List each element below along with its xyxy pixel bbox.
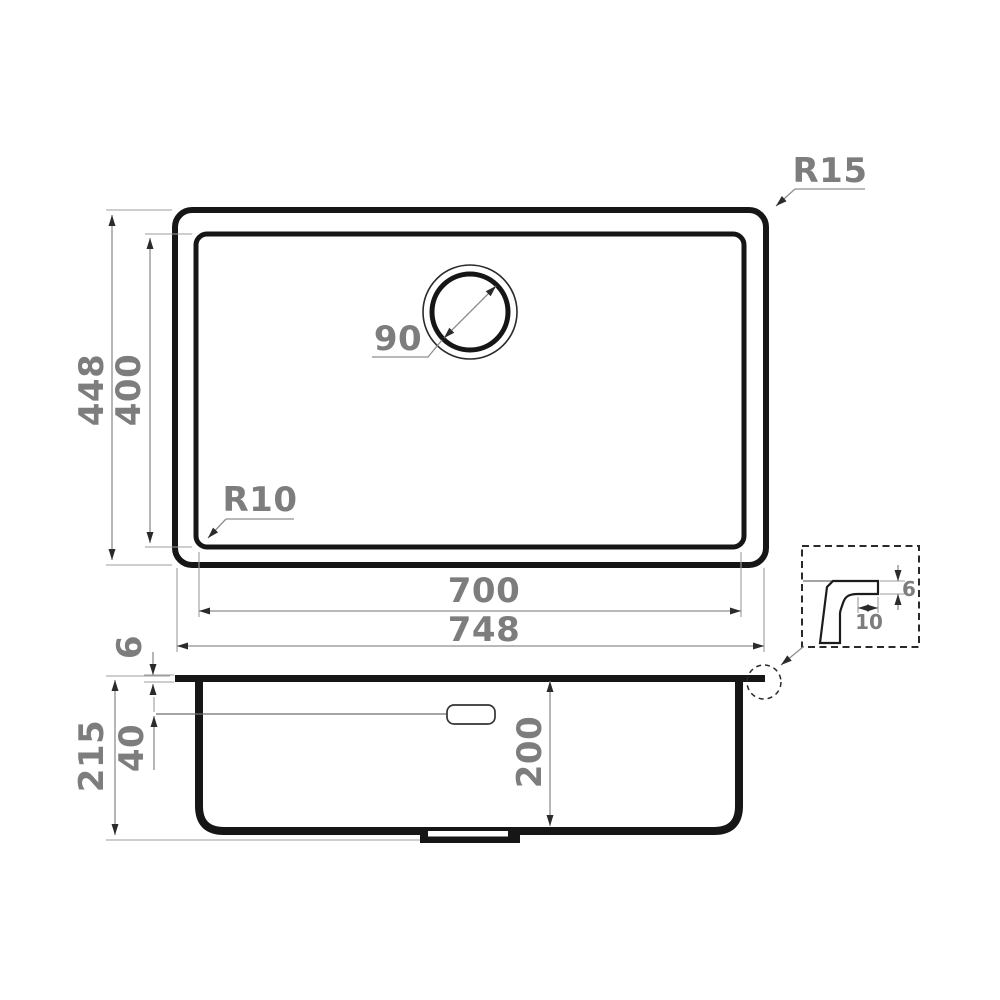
dim-inner-width-label: 700 <box>448 571 520 611</box>
drain-diameter-arrow <box>470 286 496 312</box>
dim-inner-height-label: 400 <box>109 354 149 426</box>
overflow-hole <box>447 705 495 724</box>
detail-leader <box>781 647 803 665</box>
dim-lip-width-label: 10 <box>855 610 883 634</box>
drawing-canvas: 90 448 400 700 748 R15 R10 <box>0 0 1000 1000</box>
drain-diameter-arrow <box>444 312 470 338</box>
drain-diameter-label: 90 <box>374 319 422 359</box>
dim-outer-height-label: 448 <box>72 354 112 426</box>
outer-radius-label: R15 <box>793 151 868 191</box>
outer-radius-leader <box>776 189 795 206</box>
dim-bowl-depth-label: 200 <box>510 716 550 788</box>
drain-fitting-slot <box>428 831 508 837</box>
sink-technical-drawing: 90 448 400 700 748 R15 R10 <box>0 0 1000 1000</box>
side-view: 215 6 40 200 <box>72 635 781 843</box>
dim-overflow-offset-label: 40 <box>112 724 152 772</box>
inner-radius-leader <box>208 519 226 538</box>
dim-rim-height-label: 6 <box>110 635 150 659</box>
rim-flange <box>175 675 765 682</box>
top-view: 90 448 400 700 748 R15 R10 <box>72 151 868 652</box>
detail-view: 6 10 <box>781 546 919 665</box>
dim-rim-thickness-label: 6 <box>902 577 916 601</box>
dim-total-depth-label: 215 <box>72 720 112 792</box>
dim-outer-width-label: 748 <box>448 610 520 650</box>
inner-radius-label: R10 <box>223 480 298 520</box>
